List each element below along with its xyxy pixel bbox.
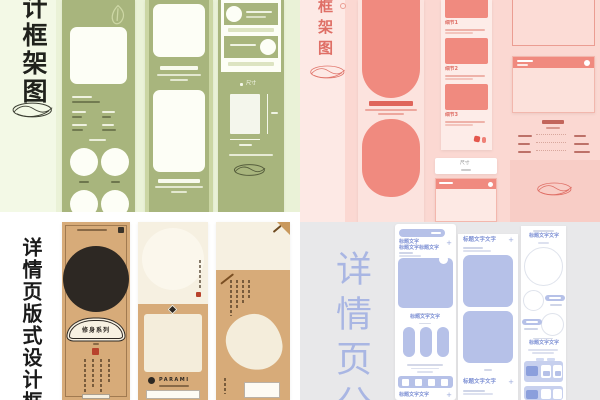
detail-image bbox=[445, 38, 488, 64]
hero-caption bbox=[378, 113, 404, 115]
detail-image bbox=[445, 0, 488, 18]
fold-corner bbox=[277, 222, 290, 235]
product-image-frame bbox=[70, 27, 127, 84]
nav-cell bbox=[402, 379, 409, 386]
hero-wing-top bbox=[362, 0, 420, 98]
pill-block bbox=[437, 327, 449, 357]
pink-panel-details: 细节1 细节2 细节3 bbox=[441, 0, 492, 150]
size-label: 尺寸 bbox=[460, 161, 470, 166]
window-titlebar bbox=[513, 57, 594, 68]
spec-line bbox=[102, 124, 114, 126]
spec-subtitle bbox=[546, 127, 560, 129]
vertical-text-column bbox=[100, 359, 102, 392]
vertical-text-column bbox=[230, 280, 232, 316]
detail-line bbox=[445, 124, 473, 126]
bottom-card bbox=[244, 382, 280, 398]
blue-panel-3: 标题文字文字 标题文字文字 bbox=[521, 226, 566, 400]
size-label: 尺寸 bbox=[246, 81, 256, 86]
widget-panel-partial bbox=[524, 386, 563, 400]
pink-window-card bbox=[435, 178, 497, 222]
feature-card bbox=[221, 0, 281, 72]
caption-subline bbox=[419, 323, 431, 324]
titlebar-text bbox=[439, 182, 453, 184]
size-bullet bbox=[240, 83, 243, 86]
pink-window-card-2 bbox=[512, 56, 595, 113]
image-block bbox=[463, 311, 513, 363]
footer-title: 标题文字文字 bbox=[463, 380, 496, 386]
plus-icon: + bbox=[508, 238, 514, 244]
kraft-panel-3 bbox=[216, 222, 290, 400]
sub-line bbox=[463, 247, 483, 249]
pink-vertical-title: 框架图 bbox=[315, 0, 336, 61]
vertical-text-column bbox=[84, 359, 86, 392]
tag-text bbox=[526, 321, 538, 323]
quadrant-pink-framework: 框架图 细节1 细节2 细节3 bbox=[300, 0, 600, 222]
detail-line bbox=[445, 29, 485, 31]
seal-icon bbox=[196, 292, 201, 297]
feature-text bbox=[230, 44, 256, 46]
spec-row-left bbox=[518, 135, 532, 137]
caption-line bbox=[157, 74, 201, 76]
green-panel-3: 尺寸 bbox=[218, 0, 284, 212]
card-title-line2: 标题文字标题文字 bbox=[399, 245, 439, 251]
titlebar-text bbox=[517, 60, 533, 62]
micro-line bbox=[411, 368, 439, 370]
spec-row-right bbox=[574, 135, 586, 137]
note-line bbox=[229, 154, 273, 156]
detail-line bbox=[445, 75, 485, 77]
micro-line bbox=[407, 364, 443, 366]
widget-panel bbox=[524, 361, 563, 382]
section-caption: 标题文字文字 bbox=[410, 315, 440, 321]
feature-bar bbox=[224, 3, 278, 25]
pink-outline-box bbox=[512, 0, 595, 46]
micro-line bbox=[417, 371, 433, 373]
widget-cell-fill bbox=[555, 371, 561, 376]
hero-image-frame bbox=[153, 4, 205, 57]
spec-row-right bbox=[574, 143, 589, 145]
hero-notch bbox=[439, 255, 448, 264]
detail-line bbox=[445, 78, 473, 80]
sub-line bbox=[463, 390, 485, 392]
pink-signature-box bbox=[510, 160, 600, 222]
leaf-icon bbox=[109, 3, 127, 28]
vertical-text-column bbox=[236, 280, 238, 310]
tag-pill bbox=[522, 319, 542, 325]
header-bar-text bbox=[431, 232, 441, 234]
quadrant-green-framework: 计框架图 bbox=[0, 0, 300, 212]
sub-line bbox=[463, 393, 493, 395]
pink-spec-table bbox=[512, 120, 595, 162]
tag-subline bbox=[524, 328, 538, 330]
widget-cell bbox=[541, 389, 551, 399]
sub-rule bbox=[528, 349, 558, 351]
spec-title bbox=[542, 120, 564, 124]
spec-line bbox=[102, 116, 111, 118]
sub-line bbox=[399, 252, 413, 254]
pink-panel-hero bbox=[358, 0, 424, 222]
nav-cell bbox=[441, 379, 448, 386]
size-underline bbox=[461, 169, 471, 171]
titlebar-dot bbox=[488, 182, 493, 187]
plus-icon: + bbox=[446, 393, 452, 399]
footer-title: 标题文字文字 bbox=[399, 393, 429, 399]
swatch-circle bbox=[101, 148, 129, 176]
green-panel-2 bbox=[145, 0, 213, 212]
feature-badge bbox=[226, 6, 242, 22]
section-title: 标题文字文字 bbox=[463, 238, 496, 244]
brand-logo-dot bbox=[148, 377, 155, 384]
widget-cell bbox=[541, 365, 551, 378]
top-rule bbox=[533, 230, 554, 232]
sub-line bbox=[463, 250, 491, 252]
spec-line bbox=[102, 111, 115, 113]
widget-label-block bbox=[526, 390, 538, 399]
spec-line bbox=[102, 129, 116, 131]
spec-line bbox=[72, 129, 83, 131]
banner-text: 修身系列 bbox=[82, 325, 110, 334]
dimension-value bbox=[239, 144, 252, 146]
detail-image-frame bbox=[153, 90, 205, 172]
titlebar-text bbox=[517, 64, 528, 66]
signature-icon bbox=[232, 162, 268, 178]
quadrant-kraft-layout: 详情页版式设计框 修身系列 bbox=[0, 212, 300, 400]
spec-line bbox=[72, 101, 100, 103]
paper-square bbox=[144, 314, 202, 372]
swatch-circle bbox=[70, 190, 98, 212]
pink-size-box: 尺寸 bbox=[435, 158, 497, 174]
spec-row-left bbox=[518, 151, 531, 153]
sub-rule bbox=[532, 352, 554, 354]
top-cream-block bbox=[216, 222, 290, 270]
vertical-text-column bbox=[224, 378, 226, 394]
note-line bbox=[89, 139, 106, 141]
kraft-vertical-title: 详情页版式设计框 bbox=[17, 237, 46, 400]
corner-stamp bbox=[118, 227, 124, 233]
detail-label: 细节1 bbox=[445, 21, 458, 26]
green-vertical-title: 计框架图 bbox=[15, 0, 51, 106]
titlebar-dot bbox=[584, 60, 590, 66]
nav-cell bbox=[415, 379, 422, 386]
plus-icon: + bbox=[508, 380, 514, 386]
dimension-box bbox=[230, 94, 260, 134]
widget-cell-fill bbox=[543, 371, 550, 376]
feature-bar bbox=[224, 36, 278, 58]
top-rule bbox=[533, 338, 553, 339]
brand-text: PARAMI bbox=[159, 378, 190, 384]
tag-subline bbox=[550, 304, 562, 306]
tag-pill bbox=[545, 295, 565, 301]
tag-text bbox=[549, 297, 561, 299]
nav-cell bbox=[428, 379, 435, 386]
caption-line bbox=[171, 191, 187, 193]
vertical-text-column bbox=[248, 280, 250, 298]
hero-block bbox=[398, 258, 453, 308]
signature-icon bbox=[535, 180, 575, 198]
spec-line bbox=[72, 124, 87, 126]
pale-circle bbox=[142, 228, 204, 290]
spec-row-dots bbox=[536, 150, 566, 151]
caption-line bbox=[155, 186, 203, 188]
diamond-icon bbox=[168, 305, 178, 315]
feature-caption bbox=[228, 28, 274, 32]
brand-mark bbox=[482, 137, 486, 143]
banner-tail bbox=[93, 343, 99, 345]
swatch-circle bbox=[70, 148, 98, 176]
swatch-label bbox=[79, 181, 89, 183]
spec-row-dots bbox=[536, 134, 566, 135]
caption-line bbox=[160, 66, 198, 70]
detail-line bbox=[445, 121, 485, 123]
vertical-text-column bbox=[92, 359, 94, 388]
vertical-text-column bbox=[108, 359, 110, 384]
organic-blob bbox=[223, 311, 285, 373]
swatch-label bbox=[111, 181, 120, 183]
top-cream-section bbox=[138, 222, 208, 304]
vertical-text-column bbox=[242, 280, 244, 304]
blue-vertical-title: 详情页分 bbox=[324, 250, 376, 400]
spec-line bbox=[72, 111, 86, 113]
brand-mark bbox=[473, 135, 480, 142]
detail-label: 细节3 bbox=[445, 113, 458, 118]
blue-panel-1: 标题文字 标题文字标题文字 + 标题文字文字 标 bbox=[395, 224, 456, 400]
window-titlebar bbox=[436, 179, 496, 189]
hero-caption bbox=[365, 109, 417, 111]
signature-icon bbox=[308, 62, 348, 82]
spec-line bbox=[72, 96, 92, 98]
widget-cell bbox=[553, 365, 562, 378]
big-outline-circle bbox=[524, 247, 563, 286]
feature-text bbox=[246, 11, 272, 13]
decor-ring bbox=[340, 3, 346, 9]
spec-row-left bbox=[518, 143, 530, 145]
nav-strip bbox=[398, 376, 453, 388]
green-panel-1 bbox=[62, 0, 135, 212]
caption-line bbox=[170, 79, 188, 81]
signature-icon bbox=[10, 98, 56, 122]
widget-label-block bbox=[526, 366, 538, 376]
sub-rule bbox=[538, 242, 549, 244]
feature-badge bbox=[260, 39, 276, 55]
hero-caption bbox=[369, 101, 413, 106]
detail-image bbox=[445, 84, 488, 110]
dimension-line-v bbox=[267, 94, 268, 134]
feature-text bbox=[246, 16, 266, 18]
brand-subline bbox=[159, 385, 189, 387]
section-title: 标题文字文字 bbox=[529, 341, 559, 347]
pill-block bbox=[403, 327, 415, 357]
bottom-box bbox=[82, 394, 110, 399]
sub-line bbox=[399, 255, 421, 257]
image-block bbox=[463, 255, 513, 307]
small-outline-circle bbox=[523, 290, 544, 311]
feature-caption bbox=[228, 62, 274, 66]
dimension-value bbox=[271, 112, 278, 114]
blue-panel-2: 标题文字文字 + 标题文字文字 + bbox=[458, 234, 518, 400]
kraft-panel-2: PARAMI bbox=[138, 222, 208, 400]
kraft-panel-1: 修身系列 bbox=[62, 222, 130, 400]
footer-strip bbox=[146, 390, 200, 399]
black-moon-circle bbox=[63, 246, 129, 312]
detail-label: 细节2 bbox=[445, 67, 458, 72]
dimension-line-h bbox=[230, 139, 260, 140]
header-text bbox=[77, 229, 107, 231]
spec-line bbox=[72, 116, 82, 118]
plus-icon: + bbox=[446, 241, 452, 247]
detail-line bbox=[445, 32, 473, 34]
pill-block bbox=[420, 327, 432, 357]
swatch-circle bbox=[101, 190, 129, 212]
design-framework-collage: 计框架图 bbox=[0, 0, 600, 400]
quadrant-blue-wireframe: 详情页分 标题文字 标题文字标题文字 + 标题文字文字 bbox=[300, 222, 600, 400]
widget-cell bbox=[553, 389, 562, 399]
card-title: 标题文字 标题文字标题文字 bbox=[399, 240, 439, 251]
spec-row-right bbox=[574, 151, 590, 153]
hero-wing-bottom bbox=[362, 119, 420, 197]
vertical-text-column bbox=[199, 260, 201, 288]
seal-icon bbox=[92, 348, 99, 355]
section-title: 标题文字文字 bbox=[529, 234, 559, 240]
small-outline-circle bbox=[541, 313, 564, 336]
spec-row-dots bbox=[536, 142, 566, 143]
micro-line bbox=[484, 369, 492, 371]
caption-line bbox=[158, 179, 200, 183]
header-bar bbox=[399, 229, 445, 237]
